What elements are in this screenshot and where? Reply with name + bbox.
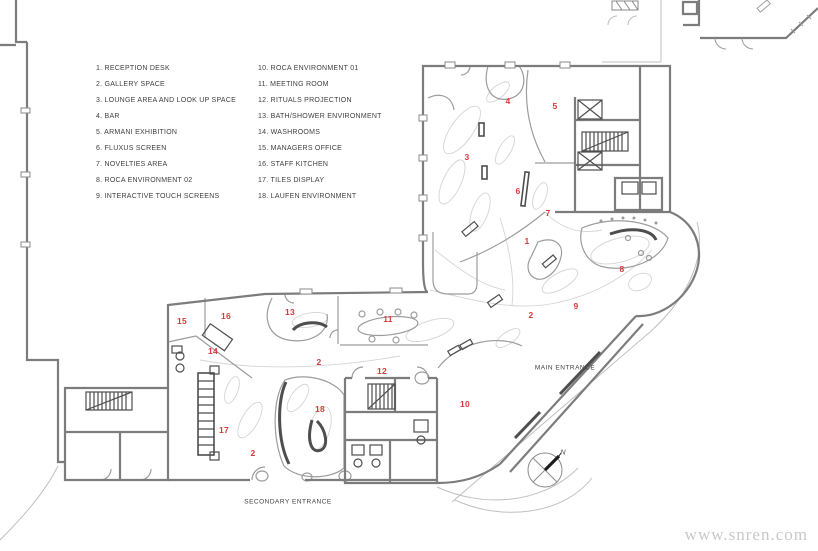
room-number-marker: 15 [177, 316, 187, 326]
legend-item: 6. FLUXUS SCREEN [96, 140, 236, 156]
room-number-marker: 16 [221, 311, 231, 321]
room-number-marker: 2 [528, 310, 533, 320]
compass-north-label: N [560, 450, 565, 457]
legend-item: 9. INTERACTIVE TOUCH SCREENS [96, 188, 236, 204]
legend-item: 18. LAUFEN ENVIRONMENT [258, 188, 382, 204]
legend-item: 2. GALLERY SPACE [96, 76, 236, 92]
legend-item: 13. BATH/SHOWER ENVIRONMENT [258, 108, 382, 124]
watermark-text: www.snren.com [685, 525, 808, 545]
legend-item: 16. STAFF KITCHEN [258, 156, 382, 172]
room-number-marker: 3 [464, 152, 469, 162]
legend-item: 10. ROCA ENVIRONMENT 01 [258, 60, 382, 76]
room-number-marker: 6 [515, 186, 520, 196]
room-number-marker: 9 [573, 301, 578, 311]
room-number-marker: 7 [545, 208, 550, 218]
room-number-marker: 12 [377, 366, 387, 376]
room-number-marker: 17 [219, 425, 229, 435]
secondary-entrance-label: SECONDARY ENTRANCE [244, 499, 332, 506]
room-number-marker: 11 [383, 314, 393, 324]
room-number-marker: 18 [315, 404, 325, 414]
room-number-marker: 2 [316, 357, 321, 367]
legend-item: 1. RECEPTION DESK [96, 60, 236, 76]
room-number-marker: 1 [524, 236, 529, 246]
legend-item: 15. MANAGERS OFFICE [258, 140, 382, 156]
room-number-marker: 8 [619, 264, 624, 274]
legend-item: 17. TILES DISPLAY [258, 172, 382, 188]
room-number-marker: 14 [208, 346, 218, 356]
legend-item: 3. LOUNGE AREA AND LOOK UP SPACE [96, 92, 236, 108]
room-number-marker: 5 [552, 101, 557, 111]
room-number-marker: 4 [505, 96, 510, 106]
room-number-marker: 13 [285, 307, 295, 317]
room-number-marker: 2 [250, 448, 255, 458]
legend-item: 14. WASHROOMS [258, 124, 382, 140]
main-entrance-label: MAIN ENTRANCE [535, 365, 595, 372]
legend-column-1: 1. RECEPTION DESK2. GALLERY SPACE3. LOUN… [96, 60, 236, 204]
legend-item: 11. MEETING ROOM [258, 76, 382, 92]
legend-column-2: 10. ROCA ENVIRONMENT 0111. MEETING ROOM1… [258, 60, 382, 204]
floor-plan-page: 1. RECEPTION DESK2. GALLERY SPACE3. LOUN… [0, 0, 818, 551]
legend-item: 4. BAR [96, 108, 236, 124]
legend-item: 7. NOVELTIES AREA [96, 156, 236, 172]
legend-item: 8. ROCA ENVIRONMENT 02 [96, 172, 236, 188]
neighbor-building-details [608, 0, 811, 49]
north-arrow-compass [528, 453, 562, 487]
legend-item: 5. ARMANI EXHIBITION [96, 124, 236, 140]
room-number-marker: 10 [460, 399, 470, 409]
legend-item: 12. RITUALS PROJECTION [258, 92, 382, 108]
